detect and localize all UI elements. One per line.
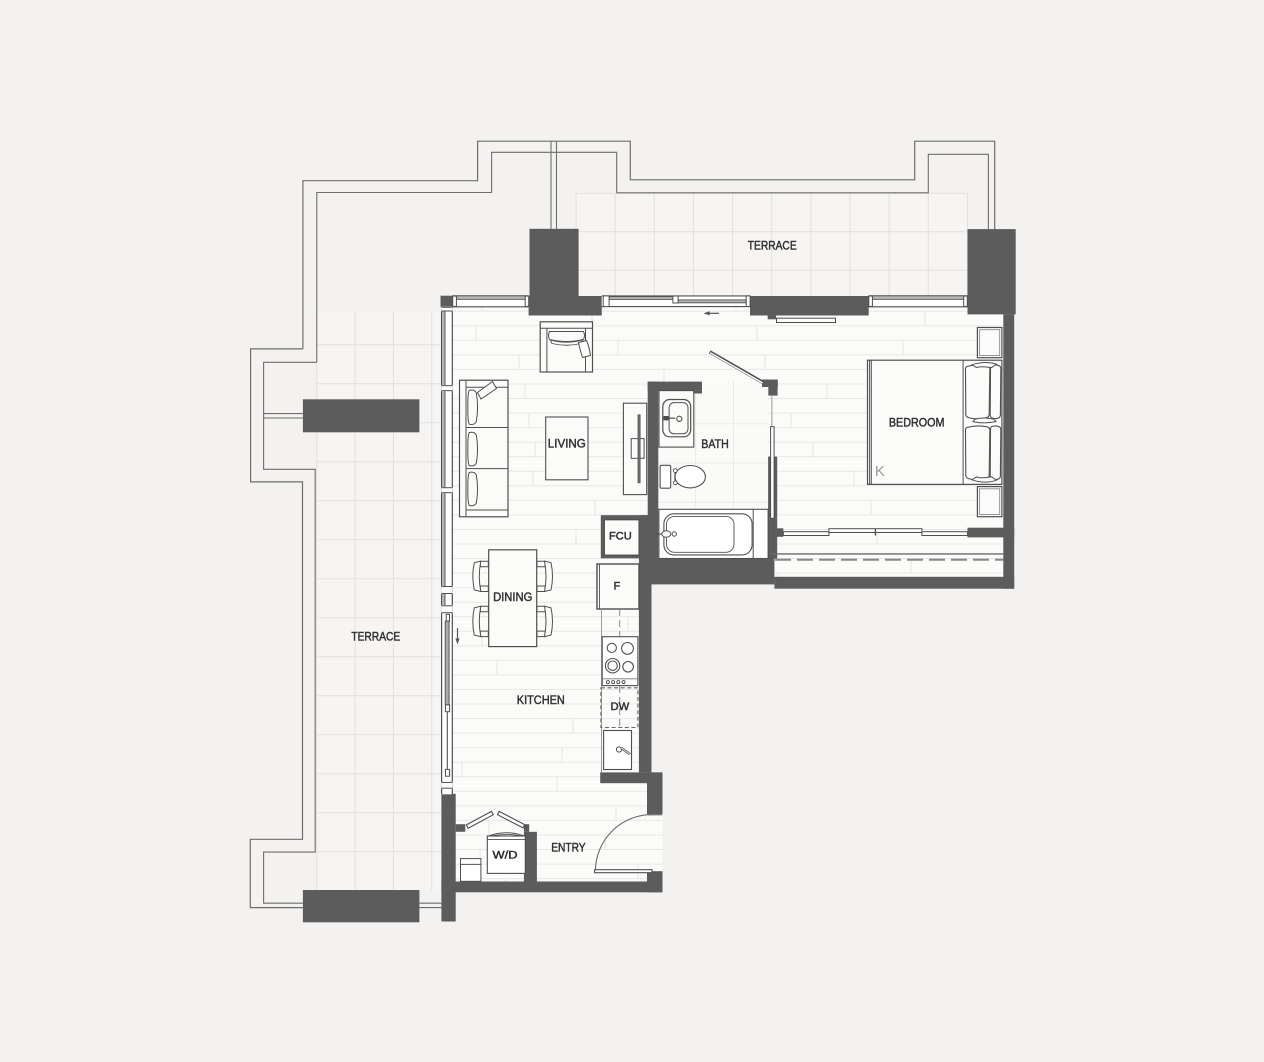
svg-text:F: F (614, 581, 621, 593)
svg-text:FCU: FCU (609, 531, 632, 543)
svg-text:TERRACE: TERRACE (748, 239, 797, 253)
svg-text:ENTRY: ENTRY (551, 840, 585, 854)
svg-text:K: K (875, 463, 885, 480)
svg-text:KITCHEN: KITCHEN (517, 693, 565, 707)
svg-text:LIVING: LIVING (548, 436, 586, 450)
svg-text:BATH: BATH (701, 437, 729, 451)
svg-text:W/D: W/D (493, 849, 518, 861)
svg-text:TERRACE: TERRACE (351, 630, 400, 644)
svg-text:DW: DW (611, 701, 630, 713)
svg-text:DINING: DINING (493, 590, 532, 604)
svg-text:BEDROOM: BEDROOM (889, 415, 945, 429)
